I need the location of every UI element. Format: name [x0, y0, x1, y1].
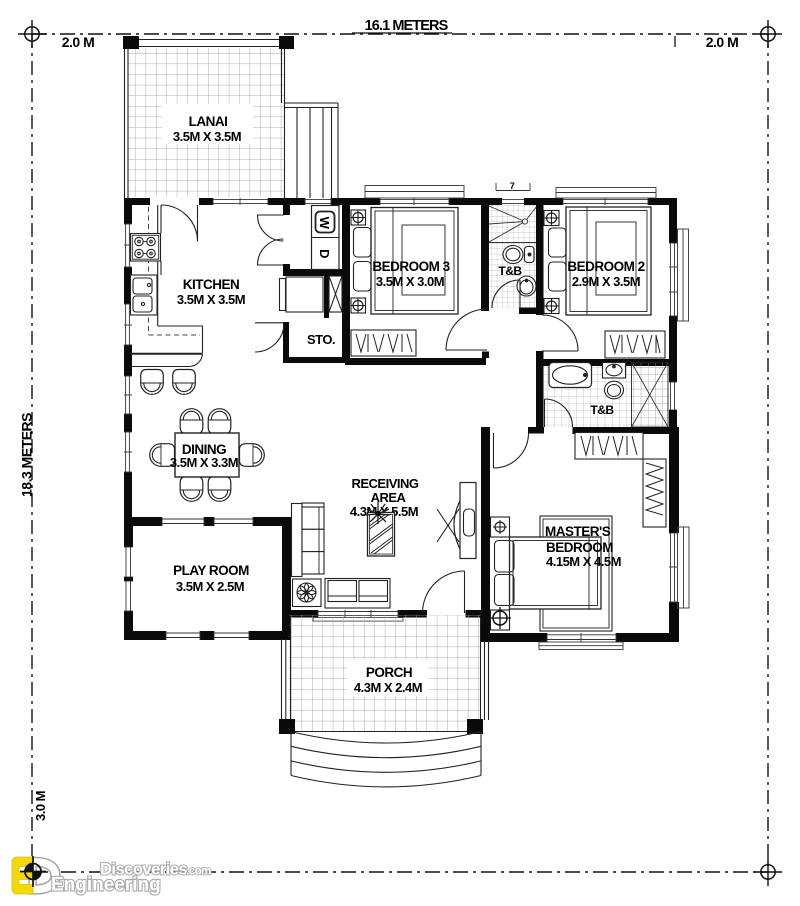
svg-text:18.3 METERS: 18.3 METERS [19, 413, 35, 497]
svg-text:BEDROOM 3: BEDROOM 3 [372, 259, 450, 274]
svg-text:KITCHEN: KITCHEN [183, 277, 240, 292]
svg-text:LANAI: LANAI [189, 114, 228, 129]
svg-text:2.0 M: 2.0 M [706, 34, 739, 50]
svg-text:PORCH: PORCH [366, 665, 412, 680]
svg-text:MASTER'S: MASTER'S [545, 524, 611, 539]
svg-text:3.5M X 3.3M: 3.5M X 3.3M [170, 455, 238, 470]
svg-text:BEDROOM: BEDROOM [546, 540, 613, 555]
svg-text:T&B: T&B [498, 264, 522, 278]
svg-text:BEDROOM 2: BEDROOM 2 [567, 259, 644, 274]
svg-text:STO.: STO. [307, 332, 335, 347]
svg-text:4.3M X 2.4M: 4.3M X 2.4M [354, 680, 422, 695]
svg-text:Engineering: Engineering [51, 875, 161, 896]
svg-text:D: D [317, 249, 332, 258]
svg-text:3.0 M: 3.0 M [33, 791, 48, 821]
svg-text:T&B: T&B [590, 403, 614, 417]
svg-text:3.5M X 3.5M: 3.5M X 3.5M [173, 129, 241, 144]
svg-text:RECEIVING: RECEIVING [351, 476, 418, 491]
svg-text:2.9M X 3.5M: 2.9M X 3.5M [572, 274, 640, 289]
svg-text:.com: .com [186, 866, 211, 878]
svg-text:4.15M X 4.5M: 4.15M X 4.5M [546, 554, 621, 569]
svg-text:PLAY ROOM: PLAY ROOM [173, 563, 249, 578]
svg-text:3.5M X 3.5M: 3.5M X 3.5M [177, 292, 245, 307]
svg-text:W: W [317, 217, 332, 230]
svg-text:2.0 M: 2.0 M [62, 34, 95, 50]
svg-text:AREA: AREA [371, 490, 407, 505]
svg-text:16.1 METERS: 16.1 METERS [365, 18, 449, 34]
svg-text:3.5M X 2.5M: 3.5M X 2.5M [176, 579, 244, 594]
svg-text:7: 7 [510, 181, 515, 191]
svg-text:3.5M X 3.0M: 3.5M X 3.0M [376, 274, 444, 289]
